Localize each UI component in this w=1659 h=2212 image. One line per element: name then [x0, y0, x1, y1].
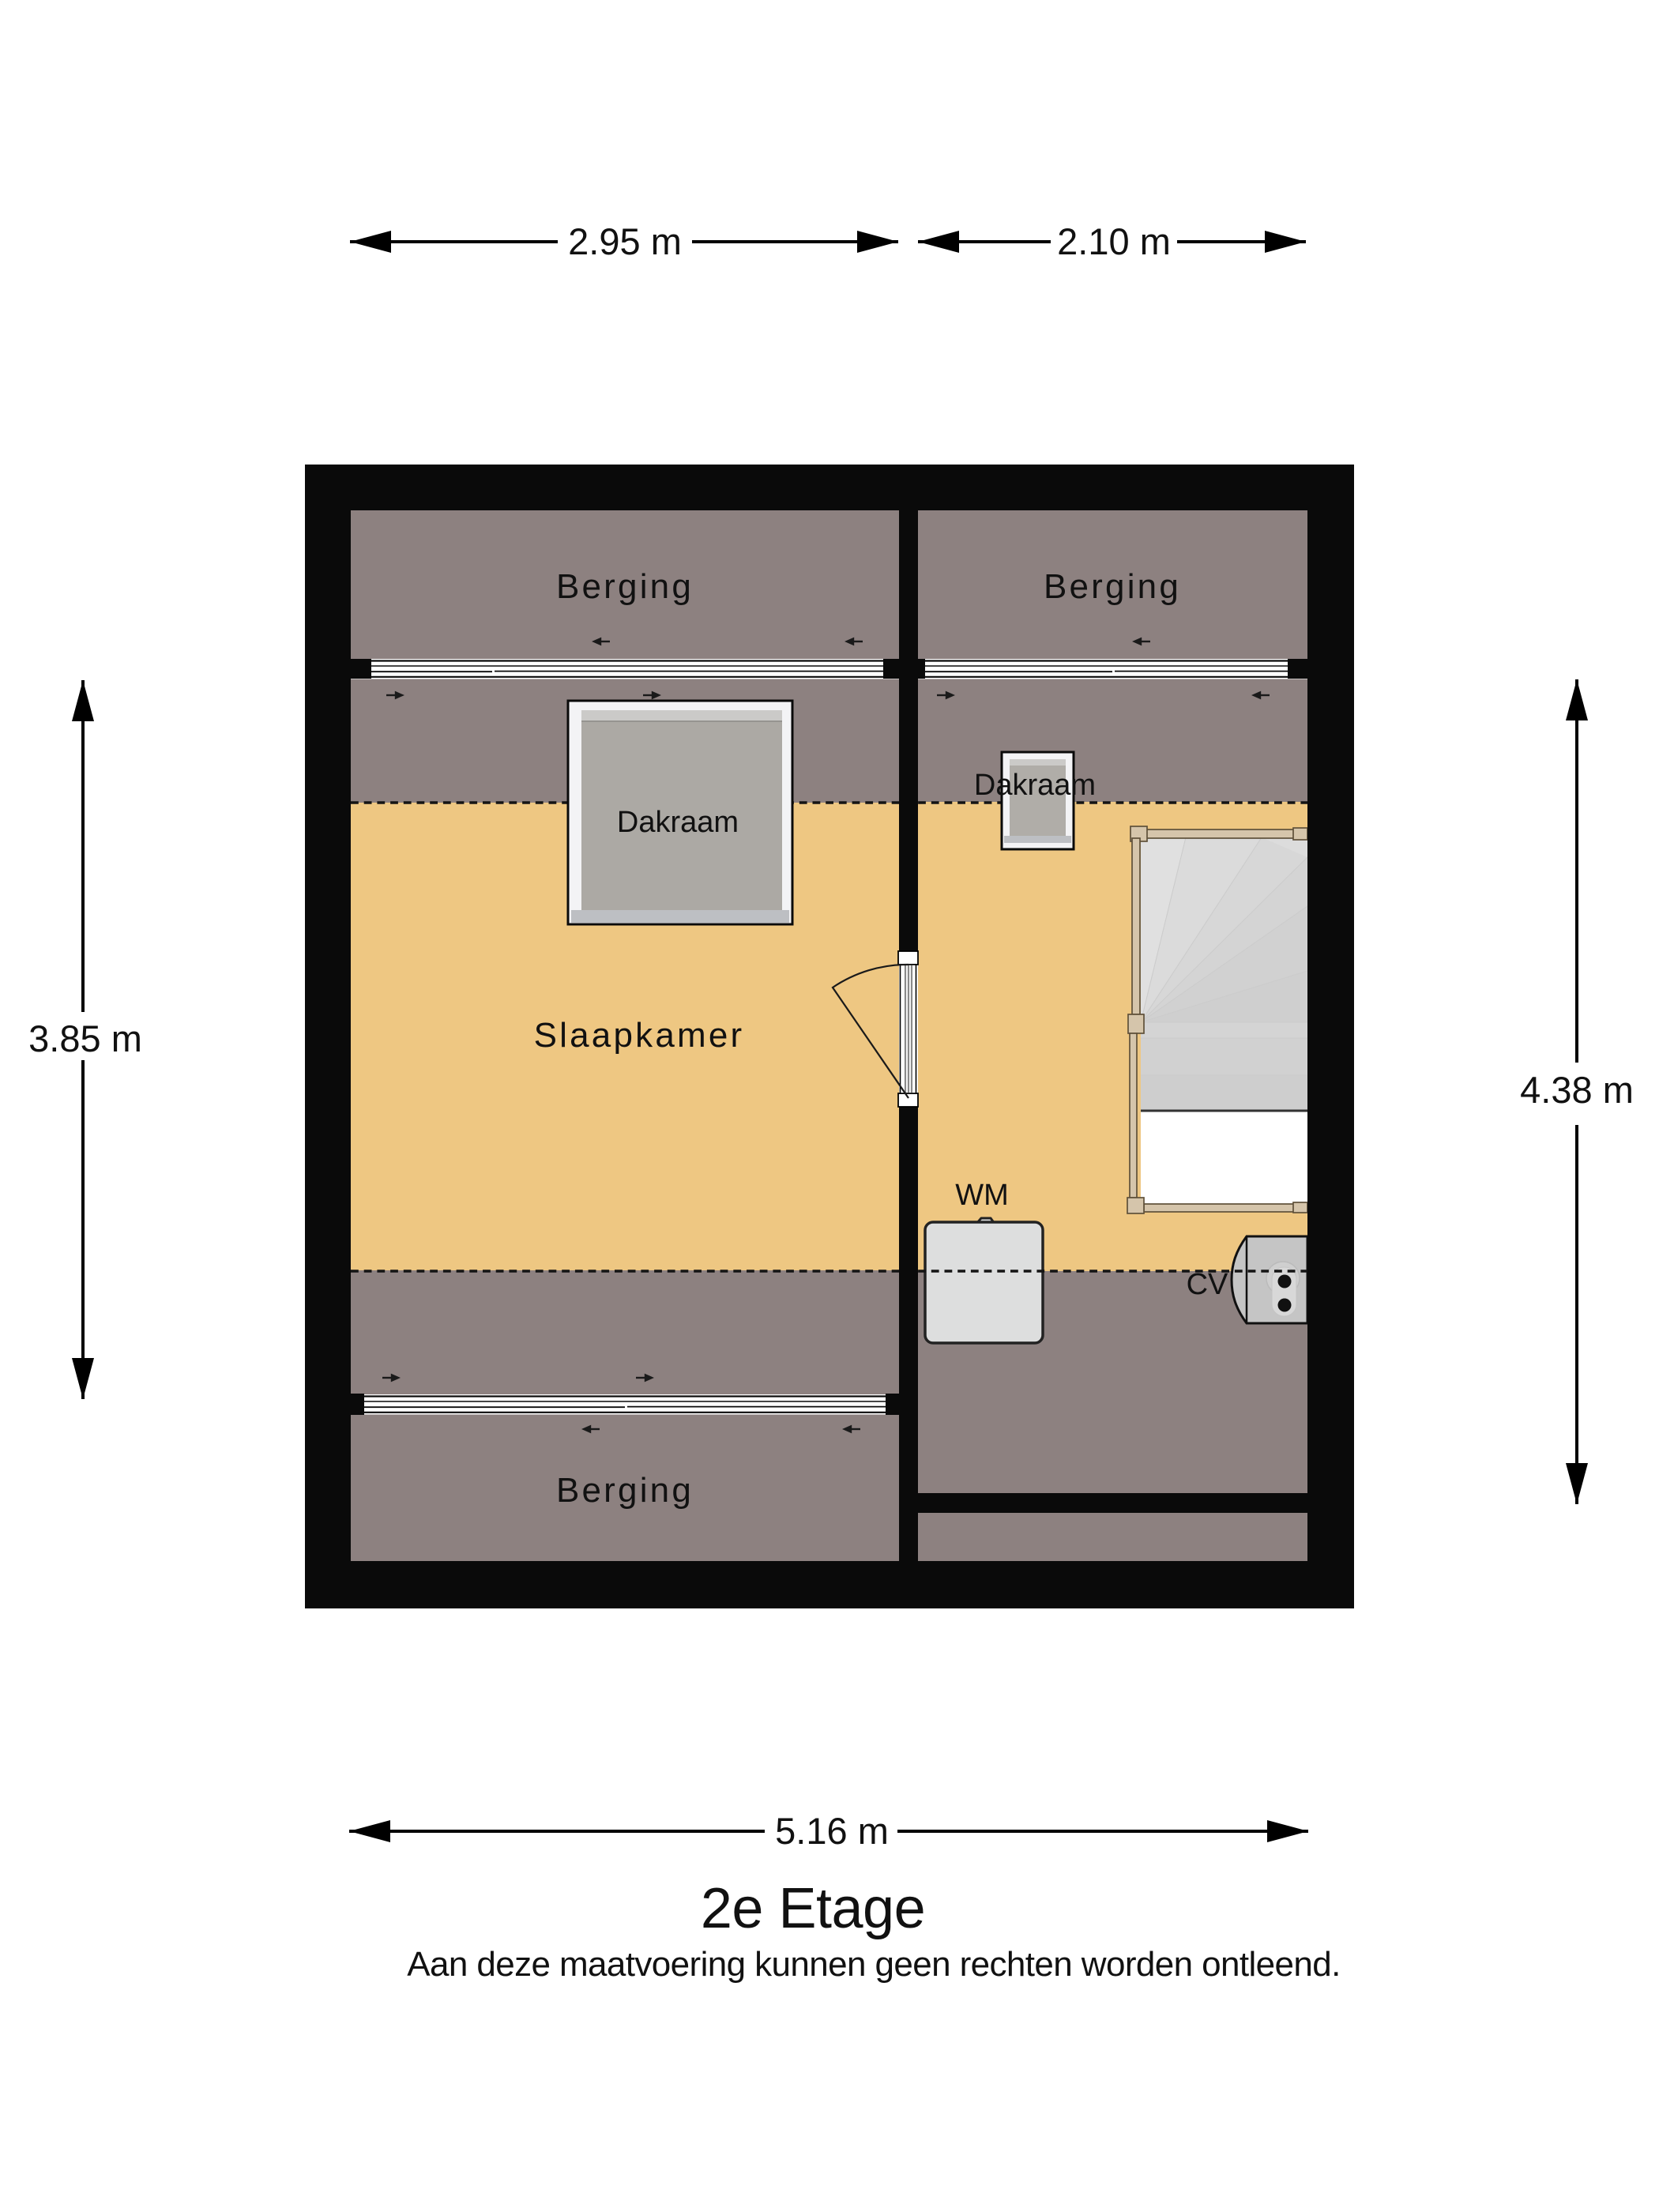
svg-text:5.16 m: 5.16 m: [775, 1810, 889, 1852]
svg-text:Dakraam: Dakraam: [617, 806, 739, 839]
svg-text:WM: WM: [955, 1179, 1009, 1212]
svg-text:3.85 m: 3.85 m: [28, 1018, 142, 1059]
svg-text:Berging: Berging: [1044, 567, 1181, 606]
svg-text:Aan deze maatvoering kunnen ge: Aan deze maatvoering kunnen geen rechten…: [407, 1945, 1341, 1984]
svg-text:4.38 m: 4.38 m: [1520, 1069, 1634, 1111]
svg-text:Slaapkamer: Slaapkamer: [534, 1016, 745, 1055]
svg-text:Berging: Berging: [556, 1471, 694, 1510]
svg-text:CV: CV: [1187, 1268, 1228, 1301]
svg-text:Berging: Berging: [556, 567, 694, 606]
svg-text:2.10 m: 2.10 m: [1057, 220, 1171, 262]
svg-text:Dakraam: Dakraam: [974, 769, 1096, 802]
svg-text:2.95 m: 2.95 m: [568, 220, 682, 262]
svg-text:2e Etage: 2e Etage: [701, 1877, 925, 1940]
